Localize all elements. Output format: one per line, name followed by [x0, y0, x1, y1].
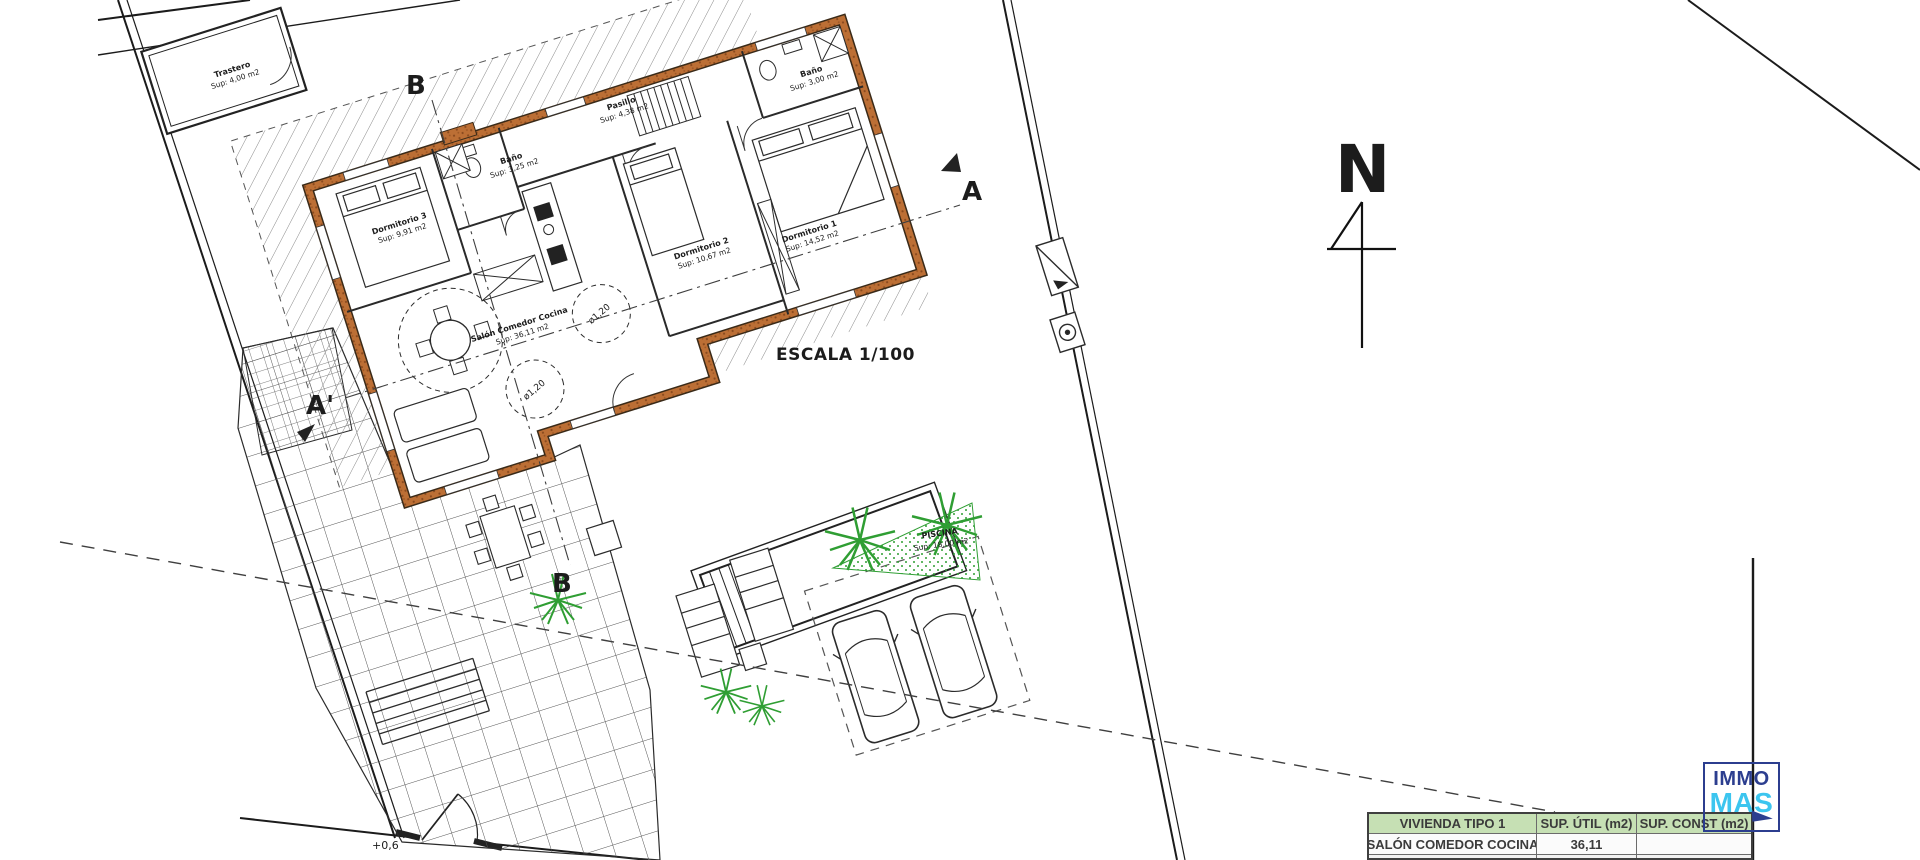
section-marker-b-bottom: B	[552, 569, 572, 599]
header-cell-vivienda: VIVIENDA TIPO 1	[1369, 814, 1537, 834]
scale-label: ESCALA 1/100	[776, 345, 915, 365]
meter-box-icon	[1036, 238, 1078, 296]
section-arrow-icon	[941, 153, 961, 172]
cell-room: SALÓN COMEDOR COCINA	[1369, 834, 1537, 855]
immomas-logo: IMMO MAS	[1703, 762, 1780, 832]
svg-text:N: N	[1335, 131, 1390, 208]
car-icon	[902, 581, 1005, 722]
car-icon	[824, 606, 927, 747]
palm-icon	[740, 685, 785, 725]
cell-sup-util: 36,11	[1537, 834, 1637, 855]
table-row: SALÓN COMEDOR COCINA 36,11	[1369, 834, 1751, 855]
house	[230, 0, 946, 525]
meter-box-icon	[1050, 312, 1085, 352]
summary-table-header: VIVIENDA TIPO 1 SUP. ÚTIL (m2) SUP. CONS…	[1369, 814, 1751, 834]
section-marker-b-top: B	[406, 71, 426, 101]
logo-text-immo: IMMO	[1705, 769, 1778, 789]
cell-sup-const	[1637, 834, 1751, 855]
section-marker-a: A	[962, 177, 982, 207]
summary-table: VIVIENDA TIPO 1 SUP. ÚTIL (m2) SUP. CONS…	[1367, 812, 1753, 860]
section-marker-a-prime: A'	[306, 391, 334, 421]
floor-plan-drawing: Trastero Sup: 4,00 m2 Dormitorio 3 Sup: …	[0, 0, 1920, 860]
north-arrow: N	[1327, 131, 1396, 348]
site-plan-sheet: Trastero Sup: 4,00 m2 Dormitorio 3 Sup: …	[0, 0, 1920, 860]
level-label: +0,6	[372, 839, 399, 852]
logo-text-mas: MAS	[1705, 790, 1778, 816]
table-row-clipped	[1369, 855, 1751, 860]
header-cell-sup-util: SUP. ÚTIL (m2)	[1537, 814, 1637, 834]
